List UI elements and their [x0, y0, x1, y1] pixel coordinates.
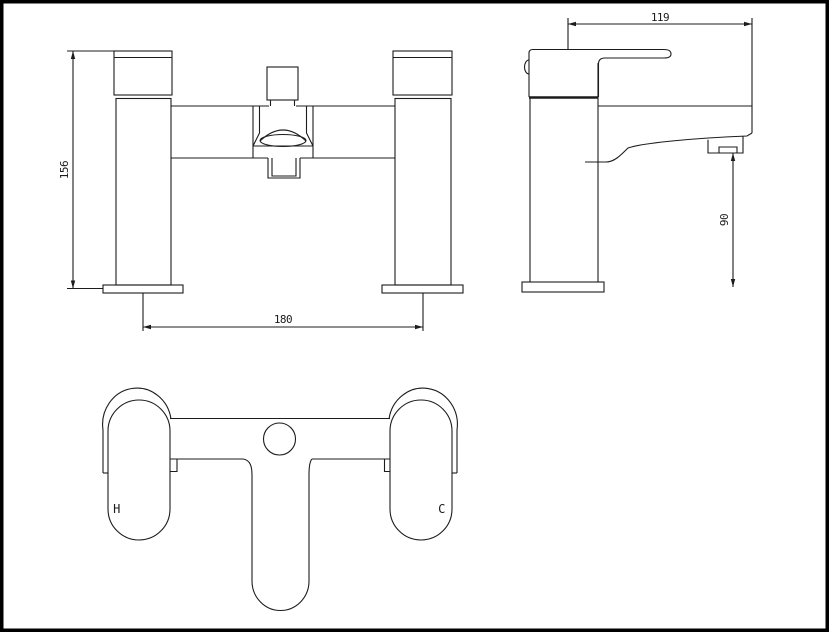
dimension-front-height: 156 — [58, 51, 114, 289]
technical-drawing-sheet: 156 180 — [0, 0, 829, 632]
dim156-arrow-up-icon — [71, 51, 75, 59]
dim119-arrow-left-icon — [568, 22, 576, 26]
hot-handle-outer-contour — [103, 388, 171, 473]
side-spout-tip-block — [708, 136, 743, 153]
dim90-arrow-up-icon — [731, 153, 735, 161]
side-handle-button — [525, 60, 530, 74]
dim90-arrow-down-icon — [731, 279, 735, 287]
diverter-recess — [253, 106, 313, 146]
dim90-label: 90 — [718, 214, 731, 226]
top-cold-handle: C — [389, 388, 457, 540]
diverter-knob-body — [267, 67, 298, 100]
side-handle-outline — [529, 50, 671, 98]
dim119-arrow-right-icon — [744, 22, 752, 26]
side-view: 119 90 — [522, 11, 752, 292]
crossbar — [171, 106, 395, 158]
side-spout — [585, 106, 752, 162]
dim119-label: 119 — [651, 11, 669, 24]
diverter-dome-arc — [260, 130, 306, 141]
left-pillar-body — [116, 99, 171, 286]
dimension-pillar-centers: 180 — [143, 293, 423, 331]
hose-outlet-outer — [268, 158, 300, 178]
right-pillar-base — [382, 285, 463, 293]
cold-handle-outer-contour — [389, 388, 457, 473]
dimension-spout-height: 90 — [718, 153, 735, 287]
hose-outlet — [268, 158, 300, 178]
top-right-notch — [385, 459, 391, 472]
cold-label: C — [438, 502, 445, 516]
diverter-block-sides — [253, 106, 313, 158]
left-pillar — [103, 51, 183, 293]
top-diverter-circle — [264, 423, 296, 455]
side-spout-aerator — [719, 147, 737, 153]
top-crossbar — [170, 419, 390, 472]
right-pillar-body — [395, 99, 451, 286]
dim180-arrow-right-icon — [415, 325, 423, 329]
left-pillar-base — [103, 285, 183, 293]
dim156-arrow-down-icon — [71, 281, 75, 289]
side-base — [522, 282, 604, 292]
diverter-block — [253, 106, 313, 158]
side-spout-top — [598, 106, 752, 133]
hose-outlet-inner — [272, 158, 296, 176]
top-hot-handle: H — [103, 388, 171, 540]
hot-handle-body — [108, 400, 170, 540]
front-view: 156 180 — [58, 51, 463, 331]
top-spout-tongue — [243, 459, 312, 611]
dim180-arrow-left-icon — [143, 325, 151, 329]
top-left-notch — [170, 459, 177, 472]
top-view: H C — [103, 388, 458, 610]
diverter-knob-neck — [271, 100, 295, 106]
diverter-knob — [267, 67, 298, 106]
dim180-label: 180 — [274, 313, 292, 326]
diverter-dome-rim — [260, 135, 306, 147]
right-pillar — [382, 51, 463, 293]
faucet-technical-drawing: 156 180 — [0, 0, 829, 632]
dim119-ext-lines — [568, 18, 752, 106]
dim156-label: 156 — [58, 161, 71, 179]
cold-handle-body — [390, 400, 452, 540]
hot-label: H — [113, 502, 120, 516]
